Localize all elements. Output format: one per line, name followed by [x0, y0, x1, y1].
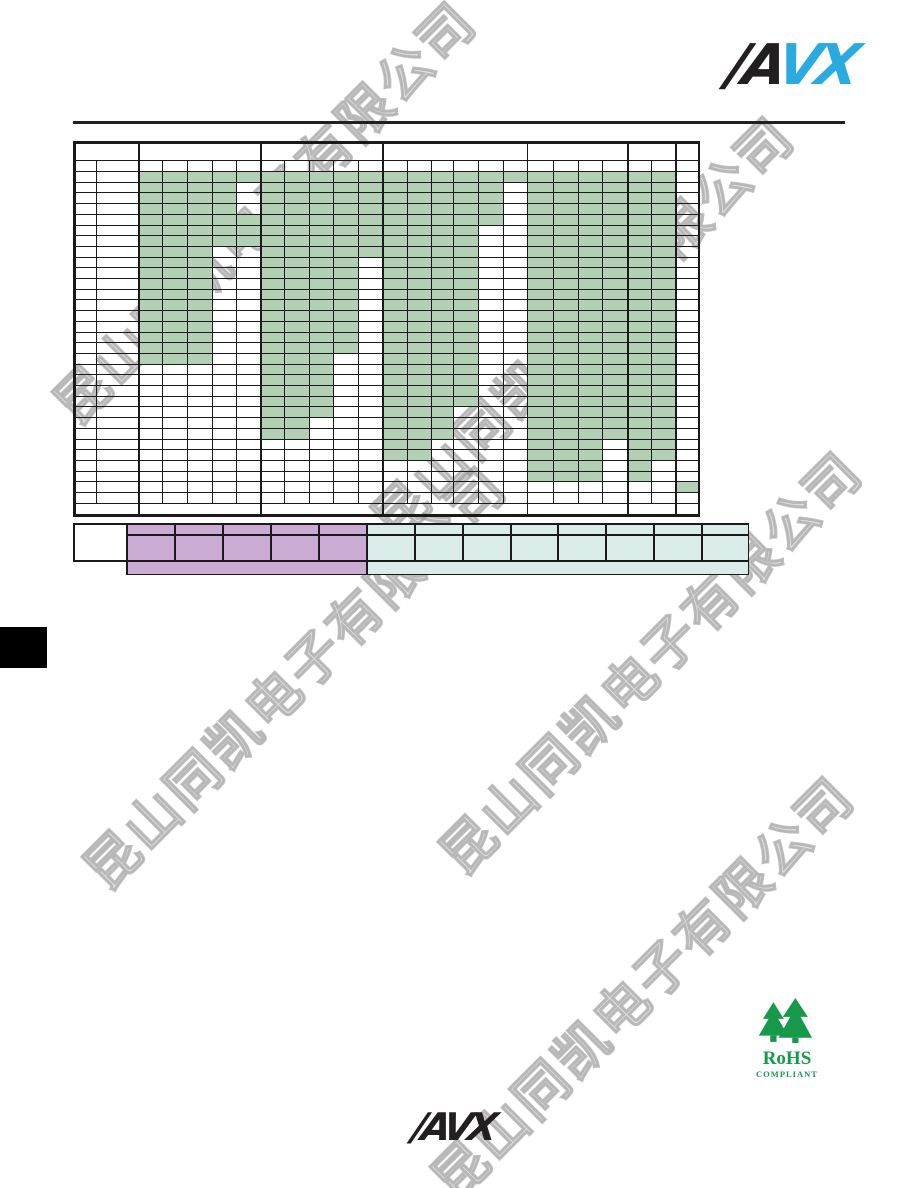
grid-line-v	[96, 160, 97, 503]
grid-line-h	[73, 182, 700, 183]
group-border-line	[675, 141, 677, 517]
grid-line-h	[73, 278, 700, 279]
avx-logo-top: /AVX	[723, 38, 859, 94]
legend-line-v	[222, 523, 224, 560]
rohs-subtitle: COMPLIANT	[744, 1069, 830, 1079]
grid-line-h	[73, 267, 700, 268]
grid-line-h	[73, 417, 700, 418]
legend-purple-band	[126, 523, 366, 575]
grid-line-h	[73, 428, 700, 429]
legend-line-v	[366, 523, 368, 575]
grid-line-h	[73, 342, 700, 343]
grid-line-v	[651, 160, 652, 503]
avx-logo-bottom: /AVX	[410, 1108, 496, 1146]
grid-line-h	[73, 471, 700, 472]
page-edge-tab	[0, 627, 47, 668]
grid-line-v	[453, 160, 454, 503]
grid-line-v	[431, 160, 432, 503]
grid-line-h	[73, 481, 700, 482]
grid-line-h	[73, 299, 700, 300]
grid-line-v	[553, 160, 554, 503]
grid-line-v	[187, 160, 188, 503]
grid-line-h	[73, 141, 700, 144]
grid-line-h	[73, 503, 700, 504]
legend-line-v	[462, 523, 464, 560]
grid-line-v	[478, 160, 479, 503]
grid-line-h	[73, 192, 700, 193]
grid-line-h	[73, 225, 700, 226]
grid-line-h	[73, 385, 700, 386]
legend-line-h	[126, 534, 749, 536]
legend-line-v	[605, 523, 607, 560]
rohs-compliant-logo: RoHS COMPLIANT	[744, 998, 830, 1079]
legend-line-v	[748, 523, 750, 575]
part-number-legend-table	[73, 523, 749, 575]
grid-line-h	[73, 257, 700, 258]
grid-line-v	[236, 160, 237, 503]
group-border-line	[527, 141, 528, 517]
group-border-line	[73, 141, 76, 517]
grid-line-h	[73, 321, 700, 322]
grid-line-h	[73, 203, 700, 204]
group-border-line	[138, 141, 140, 517]
grid-line-h	[73, 235, 700, 236]
grid-line-h	[73, 460, 700, 461]
grid-line-v	[162, 160, 163, 503]
capacitance-range-table	[73, 141, 700, 517]
grid-line-h	[73, 310, 700, 311]
grid-line-h	[73, 374, 700, 375]
legend-line-v	[414, 523, 416, 560]
grid-line-h	[73, 160, 700, 161]
legend-line-v	[318, 523, 320, 560]
legend-line-v	[174, 523, 176, 560]
legend-line-v	[557, 523, 559, 560]
grid-line-v	[602, 160, 603, 503]
legend-line-h	[73, 560, 749, 562]
grid-line-v	[503, 160, 504, 503]
legend-line-v	[701, 523, 703, 560]
grid-line-h	[73, 406, 700, 407]
legend-line-v	[510, 523, 512, 560]
legend-line-h	[126, 574, 749, 576]
legend-blank-cell	[73, 523, 126, 560]
grid-line-h	[73, 364, 700, 365]
grid-line-v	[578, 160, 579, 503]
grid-line-h	[73, 289, 700, 290]
grid-line-v	[212, 160, 213, 503]
legend-line-v	[126, 523, 128, 575]
avx-logo-cyan-part: VX	[772, 33, 860, 98]
grid-line-h	[73, 492, 700, 493]
grid-line-h	[73, 214, 700, 215]
grid-line-v	[309, 160, 310, 503]
grid-line-h	[73, 246, 700, 247]
pine-trees-icon	[754, 998, 820, 1044]
group-border-line	[627, 141, 629, 517]
grid-line-h	[73, 171, 700, 172]
grid-line-v	[333, 160, 334, 503]
grid-line-v	[284, 160, 285, 503]
avx-logo-black-part2: VX	[440, 1105, 496, 1149]
grid-line-h	[73, 514, 700, 517]
legend-line-v	[653, 523, 655, 560]
grid-line-h	[73, 439, 700, 440]
group-border-line	[698, 141, 701, 517]
datasheet-page: 昆山同凯电子有限公司昆山同凯电子有限公司昆山同凯电子有限公司昆山同凯电子有限公司…	[0, 0, 918, 1188]
grid-line-h	[73, 449, 700, 450]
group-border-line	[382, 141, 384, 517]
group-border-line	[260, 141, 262, 517]
grid-line-v	[358, 160, 359, 503]
grid-line-h	[73, 332, 700, 333]
grid-line-v	[407, 160, 408, 503]
grid-line-h	[73, 353, 700, 354]
legend-line-v	[73, 523, 75, 560]
header-rule	[73, 121, 845, 124]
grid-line-h	[73, 396, 700, 397]
legend-line-v	[270, 523, 272, 560]
rohs-title: RoHS	[744, 1049, 830, 1069]
